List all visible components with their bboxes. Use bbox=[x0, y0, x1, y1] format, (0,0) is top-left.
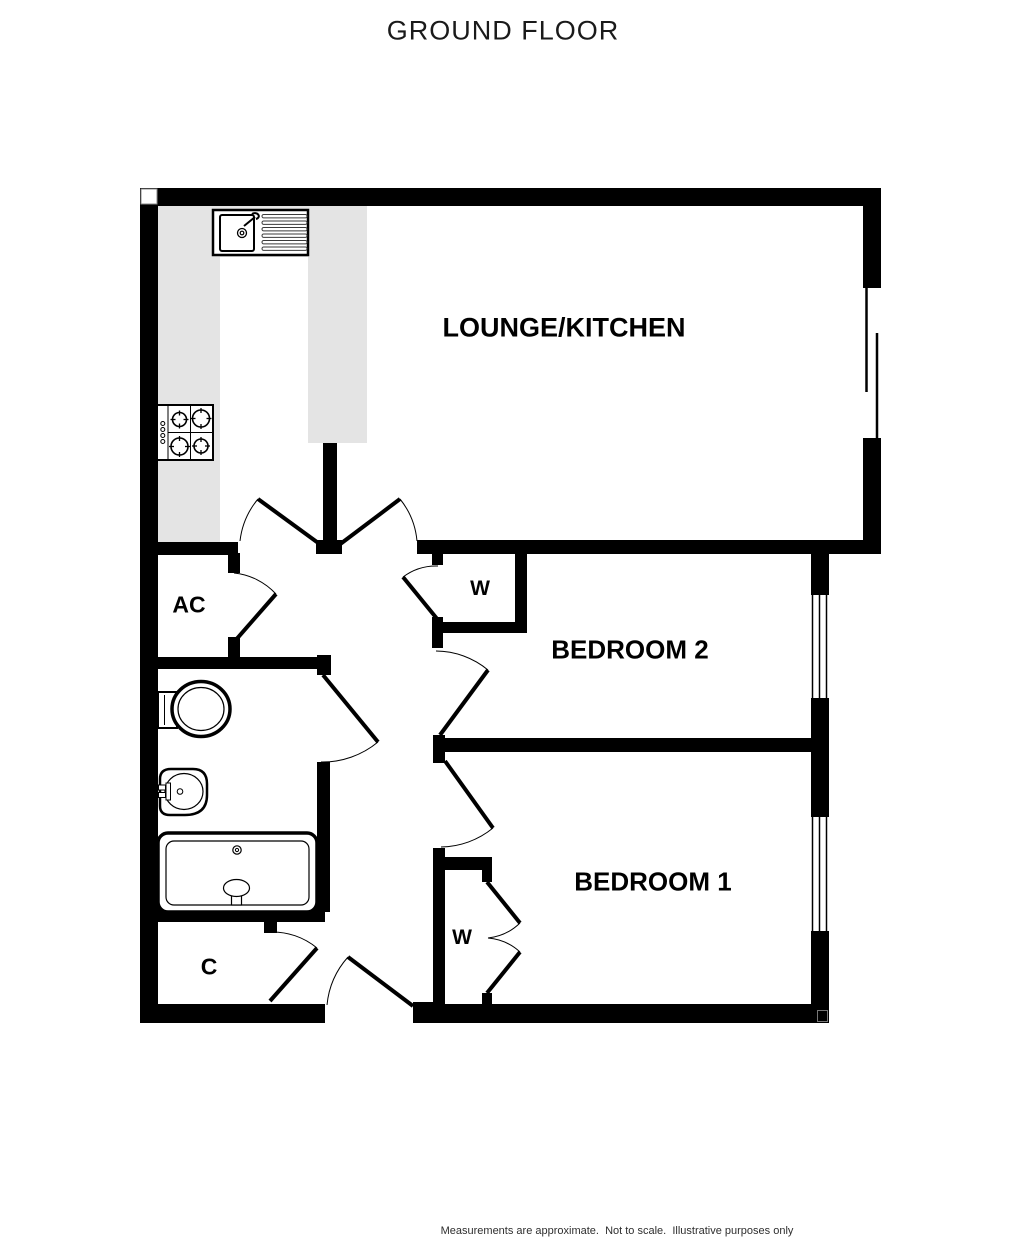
hob-icon bbox=[157, 405, 213, 460]
window-bedroom2 bbox=[813, 595, 827, 698]
window-bedroom1 bbox=[813, 817, 827, 931]
sliding-door-symbol bbox=[867, 288, 878, 442]
toilet-icon bbox=[158, 682, 230, 737]
room-label-bedroom2: BEDROOM 2 bbox=[551, 635, 708, 666]
bathtub-icon bbox=[158, 833, 317, 912]
page-title: GROUND FLOOR bbox=[387, 16, 620, 47]
room-label-ac: AC bbox=[172, 592, 205, 619]
floorplan-drawing bbox=[0, 0, 1020, 1260]
room-label-wardrobe-bedroom2: W bbox=[470, 577, 490, 601]
sink-icon bbox=[213, 210, 308, 255]
room-label-lounge-kitchen: LOUNGE/KITCHEN bbox=[443, 313, 686, 344]
disclaimer: Measurements are approximate. Not to sca… bbox=[441, 1199, 794, 1260]
room-label-bedroom1: BEDROOM 1 bbox=[574, 867, 731, 898]
basin-icon bbox=[159, 769, 208, 815]
room-label-cupboard: C bbox=[201, 954, 218, 981]
room-label-wardrobe-bedroom1: W bbox=[452, 926, 472, 950]
floorplan-page: GROUND FLOOR LOUNGE/KITCHEN BEDROOM 2 BE… bbox=[0, 0, 1020, 1260]
disclaimer-line1: Measurements are approximate. Not to sca… bbox=[441, 1225, 794, 1238]
